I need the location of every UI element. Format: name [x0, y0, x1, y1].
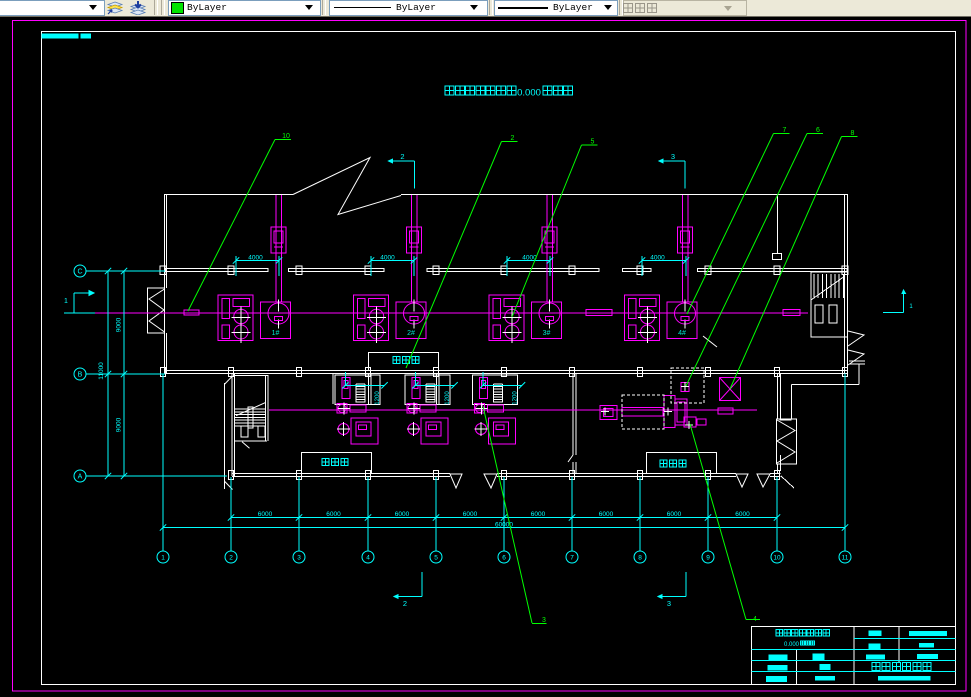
svg-text:8: 8: [851, 130, 855, 137]
svg-text:9: 9: [706, 555, 710, 562]
svg-text:3: 3: [542, 617, 546, 624]
svg-text:6000: 6000: [735, 511, 750, 518]
svg-text:10: 10: [282, 133, 290, 140]
svg-text:1#: 1#: [272, 330, 280, 337]
svg-text:4#: 4#: [678, 330, 686, 337]
svg-text:1: 1: [64, 298, 68, 305]
svg-text:6000: 6000: [395, 511, 410, 518]
svg-text:11000: 11000: [98, 362, 105, 380]
svg-text:6: 6: [502, 555, 506, 562]
svg-text:2: 2: [403, 599, 407, 608]
svg-text:6000: 6000: [326, 511, 341, 518]
svg-text:1: 1: [161, 555, 165, 562]
svg-text:9000: 9000: [116, 317, 123, 332]
svg-text:0.000: 0.000: [517, 88, 541, 99]
svg-text:6000: 6000: [463, 511, 478, 518]
svg-text:4000: 4000: [650, 255, 665, 262]
svg-text:8: 8: [638, 555, 642, 562]
svg-text:1200: 1200: [445, 391, 451, 405]
svg-text:3: 3: [671, 152, 675, 161]
svg-text:6: 6: [816, 127, 820, 134]
svg-text:2: 2: [229, 555, 233, 562]
svg-text:0.000: 0.000: [784, 642, 800, 648]
svg-text:5: 5: [591, 139, 595, 146]
svg-text:1200: 1200: [513, 391, 519, 405]
svg-text:4000: 4000: [248, 255, 263, 262]
svg-text:7: 7: [570, 555, 574, 562]
svg-text:5: 5: [434, 555, 438, 562]
svg-text:2: 2: [511, 135, 515, 142]
svg-text:4: 4: [753, 616, 757, 623]
svg-text:9000: 9000: [116, 417, 123, 432]
svg-text:6000: 6000: [667, 511, 682, 518]
svg-text:3: 3: [667, 599, 671, 608]
svg-text:1200: 1200: [375, 391, 381, 405]
svg-text:7: 7: [783, 127, 787, 134]
svg-text:3: 3: [297, 555, 301, 562]
svg-text:4000: 4000: [380, 255, 395, 262]
svg-text:4: 4: [366, 555, 370, 562]
svg-text:2: 2: [400, 152, 404, 161]
svg-text:C: C: [77, 269, 82, 276]
svg-text:B: B: [78, 372, 83, 379]
svg-text:6000: 6000: [258, 511, 273, 518]
svg-text:6000: 6000: [599, 511, 614, 518]
svg-text:3#: 3#: [543, 330, 551, 337]
svg-text:2#: 2#: [407, 330, 415, 337]
svg-text:10: 10: [773, 555, 781, 562]
svg-text:11: 11: [842, 555, 849, 562]
svg-text:A: A: [78, 474, 83, 481]
svg-text:6000: 6000: [531, 511, 546, 518]
